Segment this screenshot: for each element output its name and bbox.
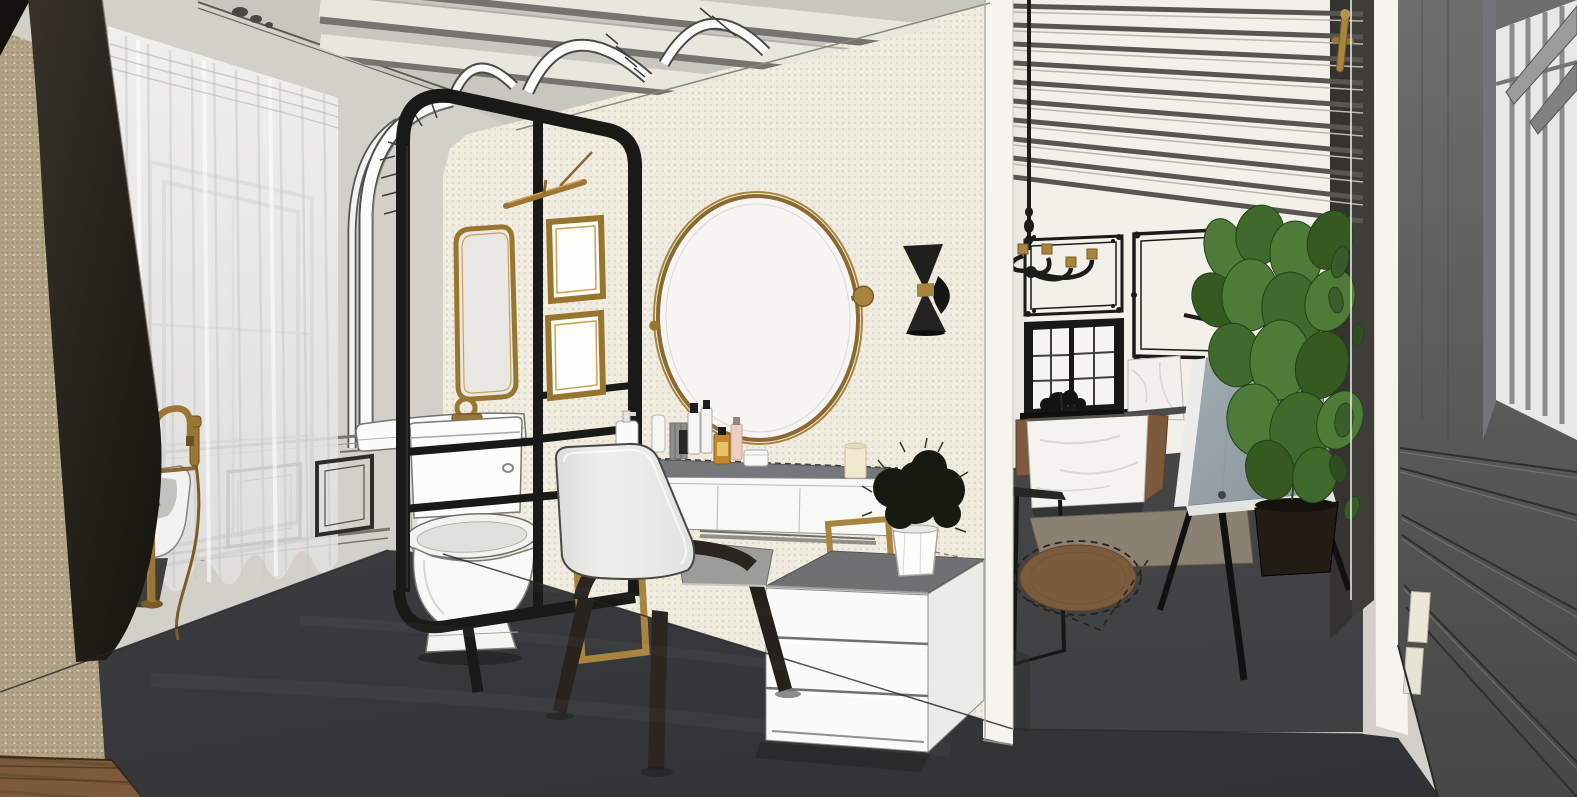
adjacent-room [1012,0,1372,732]
right-wall-details [1327,0,1577,797]
brass-picture-frame-lower [548,313,603,398]
double-cone-sconce [903,244,950,336]
scene-linework [0,0,1577,797]
round-pivot-mirror [645,188,879,448]
brass-picture-frame-upper [549,218,603,301]
panel-knob [1218,491,1226,499]
pillar-candle [845,443,866,478]
brass-door-handle [1328,8,1357,73]
dark-plant-pot [1255,502,1338,576]
brass-wall-mirror [456,227,516,399]
right-window-panes [1483,0,1577,440]
slatted-ceiling [1013,6,1363,221]
interior-render-scene [0,0,1577,797]
white-faceted-pot [893,528,938,576]
wood-corner-planks [0,757,142,797]
picture-light [506,152,592,206]
interior-window [1020,318,1128,423]
